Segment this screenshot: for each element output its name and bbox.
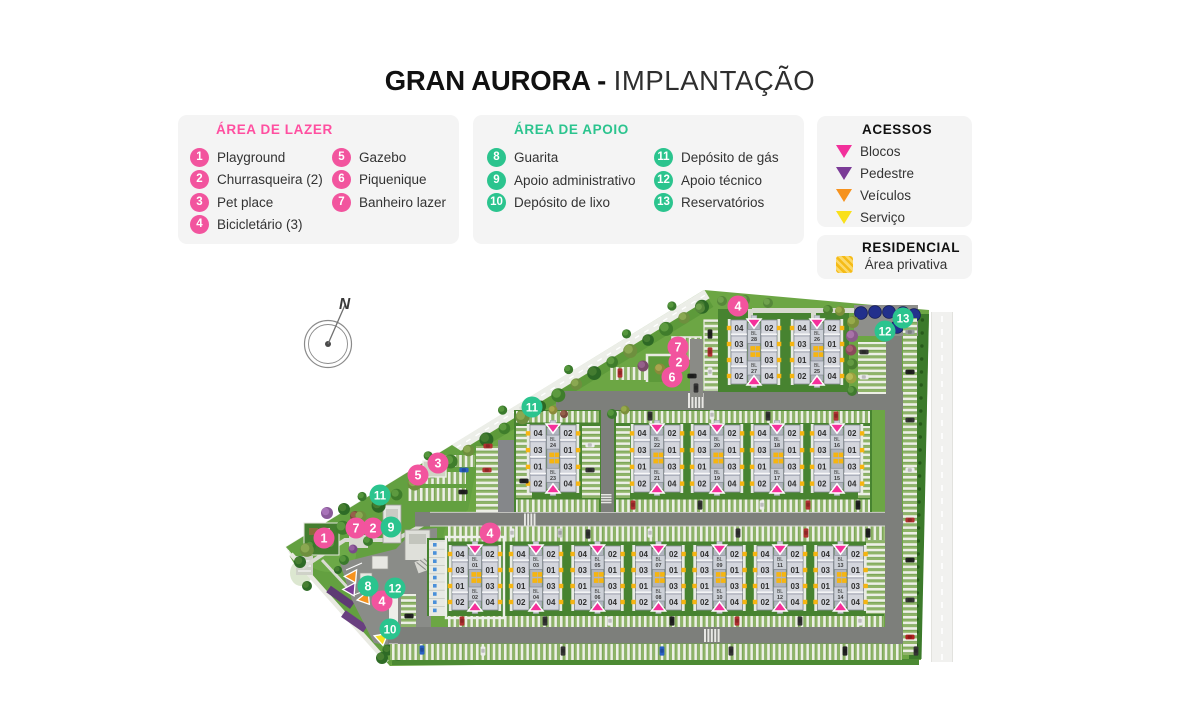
svg-text:01: 01 [758,463,767,472]
svg-text:04: 04 [700,550,709,559]
svg-text:20: 20 [714,443,720,449]
svg-text:14: 14 [838,595,844,601]
svg-text:9: 9 [388,520,395,534]
svg-text:01: 01 [578,582,587,591]
svg-text:02: 02 [486,550,495,559]
svg-text:04: 04 [669,598,678,607]
svg-text:19: 19 [714,476,720,482]
svg-text:22: 22 [654,443,660,449]
svg-text:03: 03 [486,582,495,591]
svg-text:4: 4 [487,526,494,540]
svg-text:18: 18 [774,443,780,449]
svg-text:10: 10 [384,624,397,636]
svg-text:01: 01 [851,566,860,575]
svg-text:02: 02 [728,429,737,438]
svg-text:04: 04 [791,598,800,607]
svg-text:04: 04 [758,429,767,438]
svg-text:07: 07 [656,563,662,569]
svg-text:04: 04 [798,324,807,333]
svg-text:02: 02 [828,324,837,333]
svg-text:01: 01 [669,566,678,575]
svg-text:5: 5 [415,468,422,482]
svg-text:28: 28 [751,337,757,343]
svg-text:03: 03 [788,463,797,472]
svg-text:7: 7 [353,521,360,535]
svg-text:21: 21 [654,476,660,482]
svg-text:04: 04 [533,595,539,601]
svg-text:04: 04 [828,372,837,381]
svg-text:03: 03 [517,566,526,575]
svg-text:03: 03 [608,582,617,591]
svg-text:01: 01 [564,446,573,455]
svg-text:01: 01 [608,566,617,575]
svg-text:02: 02 [730,550,739,559]
svg-text:13: 13 [897,313,910,325]
svg-text:06: 06 [595,595,601,601]
svg-text:04: 04 [730,598,739,607]
svg-text:15: 15 [834,476,840,482]
svg-text:04: 04 [638,429,647,438]
svg-text:02: 02 [698,479,707,488]
svg-text:02: 02 [848,429,857,438]
svg-text:02: 02 [534,479,543,488]
svg-text:04: 04 [547,598,556,607]
svg-text:03: 03 [761,566,770,575]
svg-text:02: 02 [668,429,677,438]
svg-text:26: 26 [814,337,820,343]
svg-text:11: 11 [777,563,783,569]
svg-text:03: 03 [669,582,678,591]
svg-text:01: 01 [788,446,797,455]
svg-text:2: 2 [676,355,683,369]
svg-text:04: 04 [517,550,526,559]
svg-text:04: 04 [818,429,827,438]
svg-text:01: 01 [700,582,709,591]
svg-text:03: 03 [791,582,800,591]
svg-text:03: 03 [818,446,827,455]
svg-text:11: 11 [374,490,387,502]
svg-text:04: 04 [735,324,744,333]
svg-text:02: 02 [791,550,800,559]
svg-text:01: 01 [791,566,800,575]
svg-text:01: 01 [848,446,857,455]
svg-text:03: 03 [668,463,677,472]
svg-text:2: 2 [370,521,377,535]
svg-text:04: 04 [578,550,587,559]
svg-text:03: 03 [456,566,465,575]
svg-text:10: 10 [717,595,723,601]
svg-text:03: 03 [848,463,857,472]
svg-text:12: 12 [777,595,783,601]
svg-text:04: 04 [851,598,860,607]
svg-text:03: 03 [735,340,744,349]
svg-text:04: 04 [788,479,797,488]
svg-text:01: 01 [818,463,827,472]
svg-text:02: 02 [761,598,770,607]
svg-text:03: 03 [547,582,556,591]
svg-text:02: 02 [851,550,860,559]
svg-text:04: 04 [761,550,770,559]
svg-text:02: 02 [608,550,617,559]
svg-text:6: 6 [669,370,676,384]
svg-text:03: 03 [798,340,807,349]
svg-text:25: 25 [814,369,820,375]
svg-text:04: 04 [564,479,573,488]
svg-text:03: 03 [578,566,587,575]
svg-text:02: 02 [818,479,827,488]
svg-text:03: 03 [638,446,647,455]
svg-text:02: 02 [578,598,587,607]
svg-text:03: 03 [700,566,709,575]
svg-text:4: 4 [735,299,742,313]
svg-text:02: 02 [700,598,709,607]
svg-text:8: 8 [365,579,372,593]
svg-text:17: 17 [774,476,780,482]
svg-text:03: 03 [730,582,739,591]
svg-text:01: 01 [698,463,707,472]
svg-text:02: 02 [639,598,648,607]
svg-text:04: 04 [821,550,830,559]
svg-text:02: 02 [472,595,478,601]
svg-text:03: 03 [828,356,837,365]
svg-text:02: 02 [735,372,744,381]
svg-text:03: 03 [533,563,539,569]
svg-text:04: 04 [534,429,543,438]
svg-text:04: 04 [728,479,737,488]
svg-text:01: 01 [517,582,526,591]
svg-text:01: 01 [728,446,737,455]
svg-text:02: 02 [758,479,767,488]
svg-text:04: 04 [668,479,677,488]
svg-text:01: 01 [456,582,465,591]
svg-text:N: N [339,296,351,313]
svg-text:12: 12 [879,326,892,338]
svg-text:03: 03 [564,463,573,472]
svg-text:24: 24 [550,443,556,449]
svg-text:03: 03 [639,566,648,575]
svg-text:16: 16 [834,443,840,449]
svg-text:04: 04 [848,479,857,488]
svg-text:02: 02 [456,598,465,607]
svg-text:05: 05 [595,563,601,569]
svg-text:01: 01 [638,463,647,472]
svg-text:3: 3 [435,456,442,470]
svg-text:02: 02 [669,550,678,559]
svg-text:01: 01 [735,356,744,365]
svg-text:04: 04 [486,598,495,607]
svg-text:01: 01 [761,582,770,591]
svg-text:1: 1 [321,531,328,545]
svg-text:01: 01 [798,356,807,365]
svg-text:03: 03 [851,582,860,591]
svg-text:11: 11 [526,402,539,414]
svg-text:04: 04 [765,372,774,381]
svg-text:02: 02 [517,598,526,607]
svg-text:23: 23 [550,476,556,482]
svg-text:08: 08 [656,595,662,601]
svg-text:02: 02 [638,479,647,488]
svg-text:03: 03 [765,356,774,365]
svg-text:02: 02 [765,324,774,333]
svg-text:01: 01 [547,566,556,575]
svg-text:04: 04 [698,429,707,438]
svg-text:03: 03 [534,446,543,455]
svg-text:01: 01 [639,582,648,591]
svg-text:01: 01 [821,582,830,591]
svg-text:02: 02 [798,372,807,381]
svg-text:01: 01 [472,563,478,569]
svg-text:03: 03 [821,566,830,575]
svg-text:01: 01 [765,340,774,349]
svg-text:12: 12 [389,583,402,595]
svg-text:03: 03 [698,446,707,455]
svg-text:01: 01 [534,463,543,472]
svg-text:03: 03 [728,463,737,472]
svg-text:03: 03 [758,446,767,455]
svg-text:01: 01 [668,446,677,455]
svg-text:02: 02 [821,598,830,607]
svg-text:04: 04 [608,598,617,607]
svg-text:02: 02 [788,429,797,438]
svg-text:02: 02 [547,550,556,559]
svg-text:04: 04 [639,550,648,559]
svg-text:27: 27 [751,369,757,375]
svg-text:09: 09 [717,563,723,569]
svg-text:4: 4 [379,594,386,608]
svg-text:01: 01 [486,566,495,575]
svg-text:01: 01 [828,340,837,349]
svg-text:13: 13 [838,563,844,569]
svg-text:04: 04 [456,550,465,559]
svg-text:01: 01 [730,566,739,575]
svg-text:02: 02 [564,429,573,438]
